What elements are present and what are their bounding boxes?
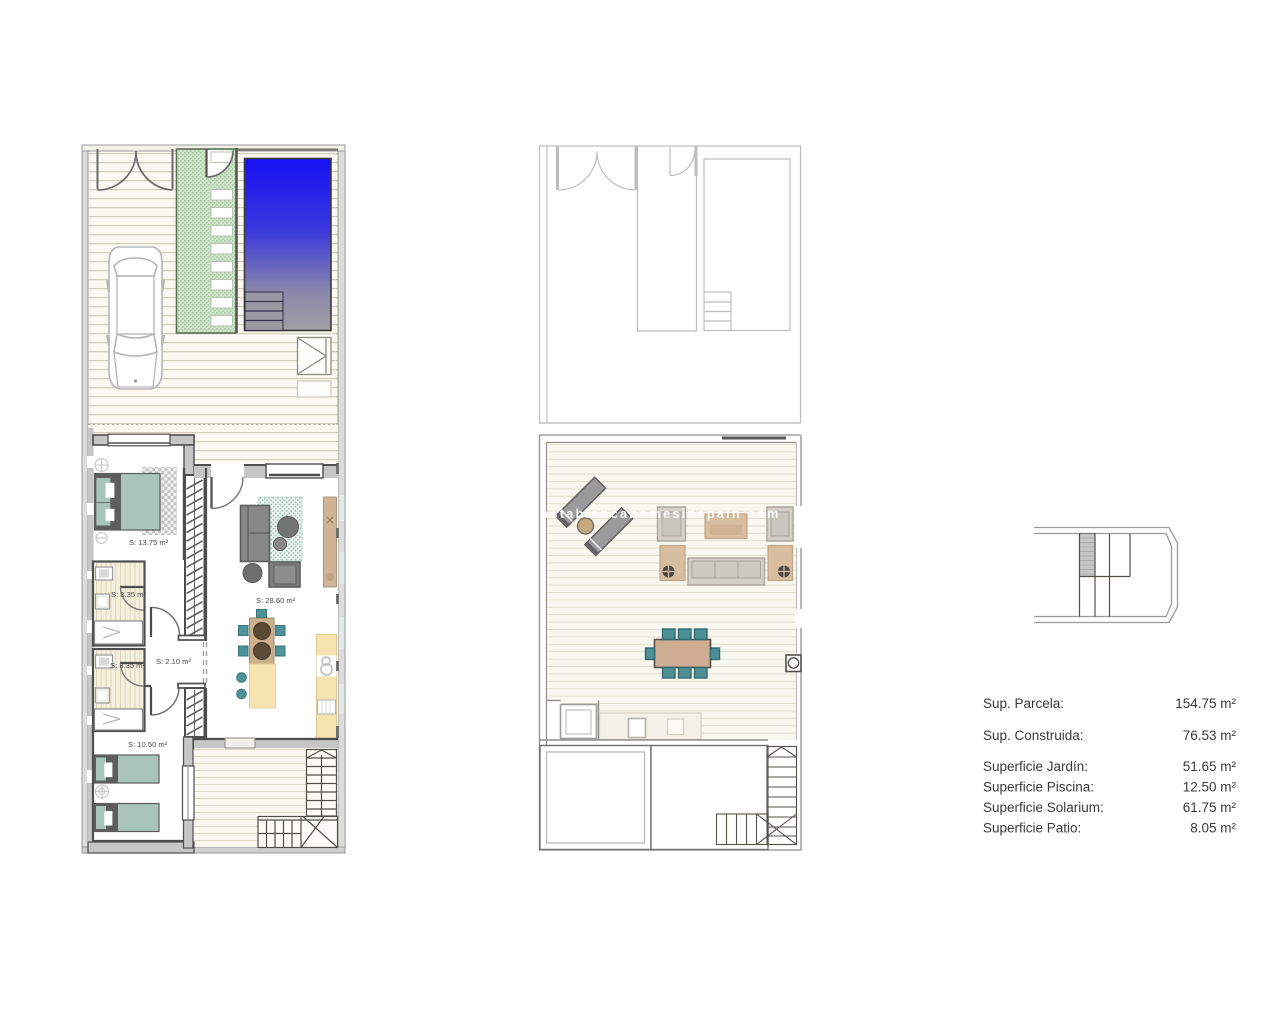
svg-text:Superficie Jardín:: Superficie Jardín: bbox=[983, 759, 1088, 774]
svg-text:Sup. Parcela:: Sup. Parcela: bbox=[983, 696, 1064, 711]
svg-text:S: 10.50 m²: S: 10.50 m² bbox=[128, 740, 168, 749]
svg-text:S: 28.60 m²: S: 28.60 m² bbox=[256, 596, 296, 605]
svg-text:Superficie Piscina:: Superficie Piscina: bbox=[983, 780, 1094, 795]
svg-text:Sup. Construida:: Sup. Construida: bbox=[983, 728, 1084, 743]
svg-text:76.53 m²: 76.53 m² bbox=[1183, 728, 1237, 743]
svg-text:Superficie Patio:: Superficie Patio: bbox=[983, 821, 1081, 836]
svg-text:costablancahomesinspain com: costablancahomesinspain com bbox=[531, 506, 781, 521]
svg-text:S: 3.35 m²: S: 3.35 m² bbox=[110, 661, 145, 670]
svg-text:154.75 m²: 154.75 m² bbox=[1175, 696, 1236, 711]
svg-text:51.65 m²: 51.65 m² bbox=[1183, 759, 1237, 774]
svg-text:S: 3.35 m²: S: 3.35 m² bbox=[111, 590, 146, 599]
svg-text:S: 13.75 m²: S: 13.75 m² bbox=[129, 538, 169, 547]
svg-text:61.75 m²: 61.75 m² bbox=[1183, 800, 1237, 815]
svg-text:Superficie Solarium:: Superficie Solarium: bbox=[983, 800, 1104, 815]
svg-text:S: 2.10 m²: S: 2.10 m² bbox=[156, 657, 191, 666]
svg-text:12.50 m²: 12.50 m² bbox=[1183, 780, 1237, 795]
svg-text:8.05 m²: 8.05 m² bbox=[1190, 821, 1236, 836]
